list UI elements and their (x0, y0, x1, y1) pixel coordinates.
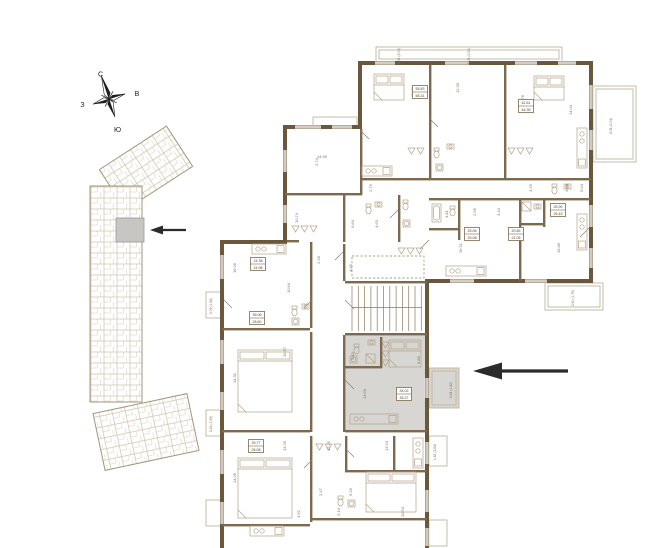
svg-text:25.77: 25.77 (252, 441, 261, 445)
staircase (352, 286, 422, 331)
area-label: 5.06 (2.53) (467, 48, 471, 64)
blanket-line (534, 87, 564, 100)
area-label: 12.25 (326, 440, 331, 451)
washer (349, 501, 354, 506)
sink-basin (366, 169, 370, 173)
stair-treads (352, 286, 422, 331)
svg-text:55.83: 55.83 (416, 87, 425, 91)
svg-text:25.08: 25.08 (468, 236, 477, 240)
svg-text:35.27: 35.27 (400, 396, 409, 400)
main-floor-plan: 15.8912.3014.5915.7614.0416.8616.513.085… (206, 47, 636, 548)
svg-text:25.08: 25.08 (468, 229, 477, 233)
sink-basin (372, 169, 376, 173)
area-label: 16.51 (458, 242, 463, 253)
pillow (266, 460, 290, 467)
toilet (338, 499, 343, 506)
area-label: 13.24 (384, 440, 389, 451)
svg-text:44.35: 44.35 (522, 108, 531, 112)
stove (383, 168, 390, 175)
toilet (292, 306, 297, 309)
svg-text:25.90: 25.90 (554, 205, 563, 209)
sink-basin (260, 529, 264, 533)
unit-number-plate: 25.0825.08 (465, 228, 480, 241)
area-label: 3.43 (350, 351, 355, 360)
sink-basin (580, 225, 584, 229)
area-label: 3.43 (496, 207, 501, 216)
compass-south-label: Ю (114, 127, 121, 134)
unit-number-plate: 25.7726.08 (249, 440, 264, 453)
toilet (434, 151, 439, 158)
wall (393, 436, 395, 470)
area-label: 16.57 (282, 346, 287, 357)
wall (222, 328, 310, 330)
blanket-line (238, 361, 292, 412)
wardrobe (292, 226, 317, 232)
wall (429, 228, 460, 230)
unit-number-plate: 55.8358.31 (413, 86, 428, 99)
wall (360, 178, 591, 180)
wall (358, 61, 362, 129)
floor-plan-page: С В З Ю (0, 0, 670, 548)
pillow (368, 474, 390, 481)
blanket-line (374, 85, 404, 100)
stove (415, 459, 422, 466)
area-label: 3.64 (1.82) (449, 382, 453, 398)
area-label: 2.79 (368, 183, 373, 192)
svg-text:24.98: 24.98 (254, 266, 263, 270)
wall (285, 193, 362, 195)
svg-text:20.85: 20.85 (512, 229, 521, 233)
toilet (366, 204, 371, 207)
sink (449, 145, 452, 148)
bathtub (434, 206, 440, 220)
furniture (238, 74, 587, 536)
wall (429, 65, 431, 180)
selected-unit-balcony (429, 368, 459, 408)
pillow (240, 460, 264, 467)
wall (343, 335, 345, 432)
area-label: 2.28 (316, 255, 321, 264)
svg-text:35.06: 35.06 (253, 313, 262, 317)
compass-rose: С В З Ю (80, 70, 139, 134)
pillow (392, 474, 414, 481)
unit-number-plate: 24.3824.98 (251, 258, 266, 271)
toilet (450, 209, 455, 216)
toilet (366, 207, 371, 214)
sink-basin (580, 218, 584, 222)
toilet (403, 200, 408, 203)
key-plan-selected-unit[interactable] (116, 218, 144, 242)
area-label: 2.96 (472, 207, 477, 216)
washer (293, 319, 298, 324)
area-label: 14.04 (568, 104, 573, 115)
area-label: 10.64 (286, 282, 291, 293)
floor-plan-drawing: С В З Ю (0, 0, 670, 548)
sink (536, 205, 539, 208)
area-label: 16.86 (556, 242, 561, 253)
unit-number-plate: 25.9025.43 (551, 204, 566, 217)
area-label: 3.08 (564, 183, 569, 192)
wall (429, 198, 591, 200)
stove (477, 268, 484, 275)
area-label: 3.29 (528, 183, 533, 192)
area-label: 9.80 (416, 355, 421, 364)
pillow (240, 352, 264, 359)
sink-basin (262, 247, 266, 251)
area-label: 2.74 (314, 157, 319, 166)
wall (345, 366, 382, 368)
unit-number-plates: 55.8358.3142.6144.3525.9025.4325.0825.08… (249, 86, 566, 453)
sink (377, 203, 380, 206)
unit-number-plate: 35.0628.60 (250, 312, 265, 325)
sink-basin (580, 139, 584, 143)
wall (504, 65, 506, 180)
svg-text:21.05: 21.05 (512, 236, 521, 240)
area-label: 14.31 (232, 372, 237, 383)
sink-basin (416, 449, 420, 453)
wall (310, 436, 312, 522)
wardrobe (508, 148, 533, 154)
area-label: 4.08 (2.04) (609, 118, 613, 134)
wardrobe (398, 248, 423, 254)
wall (345, 436, 347, 470)
washer (437, 165, 442, 170)
wall (310, 332, 312, 432)
area-label: 3.10 (336, 507, 341, 516)
area-label: 4.63 (374, 219, 379, 228)
sink-basin (256, 247, 260, 251)
outer-walls (220, 61, 593, 548)
pillow (536, 78, 548, 85)
wall (283, 125, 287, 244)
area-label: 6.06 (3.03) (397, 48, 401, 64)
wall (287, 240, 299, 242)
wall (343, 193, 345, 242)
area-label: 9.26 (348, 487, 353, 496)
unit-number-plate: 34.0235.27 (397, 388, 412, 401)
wall (343, 244, 345, 281)
area-label: 10.74 (294, 212, 299, 223)
area-label: 12.30 (455, 82, 460, 93)
inner-walls (222, 65, 591, 526)
area-label: 16.06 (232, 262, 237, 273)
area-label: 5.04 (579, 183, 584, 192)
svg-text:24.38: 24.38 (254, 259, 263, 263)
area-label: 13.99 (362, 388, 367, 399)
area-label: 4.92 (296, 509, 301, 518)
wall (345, 281, 427, 283)
wall (222, 430, 310, 432)
svg-text:26.08: 26.08 (252, 448, 261, 452)
pillow (550, 78, 562, 85)
area-label: 14.06 (232, 472, 237, 483)
pillow (390, 76, 402, 83)
area-label: 3.18 (1.59) (209, 416, 213, 432)
toilet (292, 309, 297, 316)
area-label: 13.26 (282, 440, 287, 451)
sink-basin (580, 132, 584, 136)
stove (579, 159, 586, 166)
svg-text:42.61: 42.61 (522, 101, 531, 105)
wall (310, 242, 312, 328)
wardrobe (408, 148, 424, 154)
toilet (338, 496, 343, 499)
wall (345, 333, 427, 335)
pointer-arrow-icon (473, 363, 568, 380)
key-plan-bottom-wing (93, 394, 199, 471)
toilet (450, 206, 455, 209)
toilet (434, 148, 439, 151)
area-label: 3.60 (1.75) (571, 290, 575, 306)
area-label: 2.47 (318, 487, 323, 496)
windows (220, 61, 593, 546)
blanket-line (366, 483, 416, 512)
area-label: 4.65 (348, 263, 353, 272)
area-label: 3.09 (1.56) (209, 298, 213, 314)
area-label: 1.82 (3.64) (433, 444, 437, 460)
wall (543, 200, 545, 227)
area-label: 9.84 (350, 219, 355, 228)
stair-landing-dashed (352, 256, 424, 278)
key-plan-arrow-icon (150, 226, 186, 235)
wall (458, 200, 460, 240)
bed (366, 472, 416, 512)
unit-number-plate: 20.8521.05 (509, 228, 524, 241)
stove (579, 241, 586, 248)
wall (310, 518, 427, 520)
sink-basin (450, 269, 454, 273)
sink-basin (254, 529, 258, 533)
wall (519, 223, 545, 225)
pillow (376, 76, 388, 83)
shower (522, 202, 531, 211)
compass-north-label: С (98, 72, 103, 79)
stove (277, 246, 284, 253)
wall (360, 129, 362, 195)
key-plan (90, 126, 199, 470)
wall (398, 195, 400, 242)
toilet (403, 203, 408, 210)
svg-text:34.02: 34.02 (400, 389, 409, 393)
svg-text:25.43: 25.43 (554, 212, 563, 216)
wall (220, 240, 287, 244)
compass-east-label: В (135, 91, 140, 98)
blanket-line (238, 469, 292, 518)
wall (345, 430, 427, 432)
toilet (552, 184, 557, 187)
unit-number-plate: 42.6144.35 (519, 100, 534, 113)
toilet (552, 187, 557, 194)
washer (404, 221, 409, 226)
area-label: 4.81 (444, 209, 449, 218)
svg-text:58.31: 58.31 (416, 94, 425, 98)
sink-basin (456, 269, 460, 273)
compass-west-label: З (80, 102, 84, 109)
stove (275, 528, 282, 535)
sink-basin (416, 442, 420, 446)
area-label: 10.54 (400, 506, 405, 517)
svg-text:28.60: 28.60 (253, 320, 262, 324)
